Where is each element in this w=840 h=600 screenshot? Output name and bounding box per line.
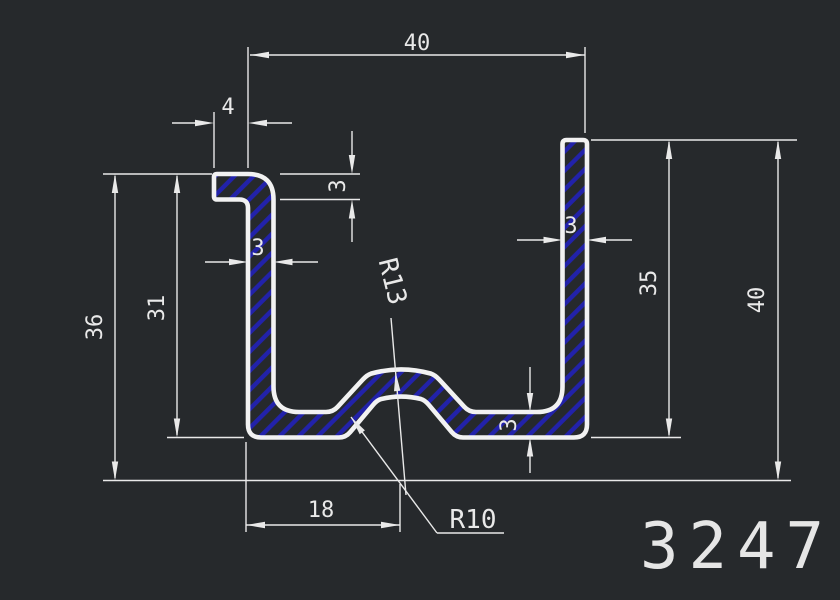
dim-text-right-wall-thickness: 3 bbox=[564, 214, 577, 239]
dim-lip-thickness-3: 3 bbox=[280, 131, 360, 242]
dim-left-wall-thickness-3: 3 bbox=[205, 236, 318, 265]
cad-drawing: 40 4 3 3 3 bbox=[0, 0, 840, 600]
dim-left-total-height-36: 36 bbox=[83, 174, 212, 481]
dim-text-lip-thickness: 3 bbox=[326, 179, 351, 192]
dim-text-groove-inner-radius: R10 bbox=[450, 505, 497, 535]
dim-text-groove-offset: 18 bbox=[308, 498, 335, 523]
dim-text-bottom-thickness: 3 bbox=[497, 418, 522, 431]
dim-text-groove-outer-radius: R13 bbox=[372, 255, 412, 308]
dim-right-wall-thickness-3: 3 bbox=[517, 214, 632, 243]
dim-text-overall-width: 40 bbox=[404, 31, 431, 56]
part-number: 3247 bbox=[640, 510, 834, 584]
dim-lip-length-4: 4 bbox=[172, 95, 292, 168]
dim-text-right-total-height: 40 bbox=[745, 287, 770, 314]
dim-groove-offset-18: 18 bbox=[246, 442, 400, 532]
dim-text-left-total-height: 36 bbox=[83, 314, 108, 341]
cad-drawing-canvas: 40 4 3 3 3 bbox=[0, 0, 840, 600]
dim-left-wall-height-31: 31 bbox=[145, 174, 244, 438]
dim-overall-width-40: 40 bbox=[248, 31, 585, 168]
dim-text-lip-length: 4 bbox=[221, 95, 234, 120]
dim-text-left-wall-height: 31 bbox=[145, 295, 170, 322]
dim-text-right-wall-height: 35 bbox=[637, 270, 662, 297]
dim-text-left-wall-thickness: 3 bbox=[251, 236, 264, 261]
